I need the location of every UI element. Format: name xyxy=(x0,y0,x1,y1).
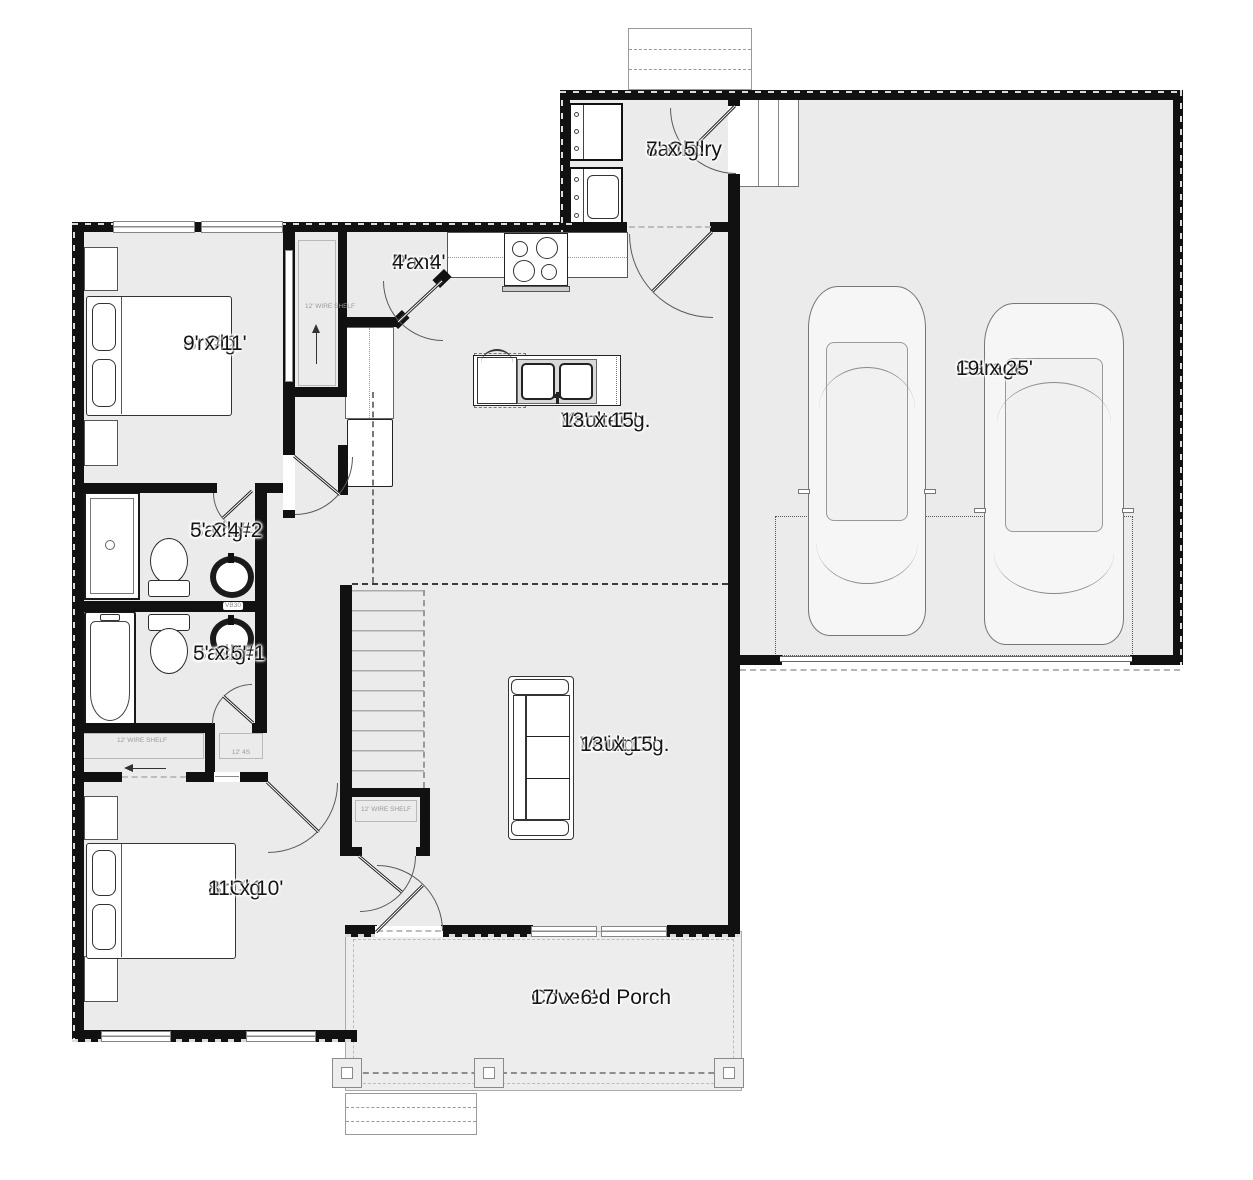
stairs-edge-dashed xyxy=(423,590,425,788)
br1-window xyxy=(246,1031,316,1042)
sink-basin xyxy=(521,363,555,400)
porch-post xyxy=(714,1058,744,1088)
br1-window xyxy=(101,1031,171,1042)
nightstand xyxy=(84,796,118,840)
porch-post-line xyxy=(353,1072,734,1074)
garage-door-overhang xyxy=(740,669,1180,671)
toilet xyxy=(150,538,188,584)
floor-plan: Laundry8' Clg.7' x 5' Pant.4' x 4' Br. #… xyxy=(0,0,1253,1180)
vault-line xyxy=(352,583,738,585)
wall-hatch xyxy=(73,232,76,1040)
hall-closet-shelf-label: 12' WIRE SHELF xyxy=(361,806,411,814)
wall-hall-west xyxy=(283,397,295,455)
porch-post xyxy=(474,1058,504,1088)
island-appliance xyxy=(477,357,517,404)
porch-post xyxy=(332,1058,362,1088)
nightstand xyxy=(84,420,118,466)
closet-arrow-head xyxy=(124,764,133,772)
vanity-label: VB30 xyxy=(223,602,243,610)
toilet xyxy=(150,628,188,674)
wall-laundry-bottom-nub xyxy=(710,222,730,232)
nightstand xyxy=(84,956,118,1002)
small-closet-label: 12' 4S xyxy=(232,749,250,757)
small-closet-opening xyxy=(214,772,240,782)
wall-br1-closet-bottom xyxy=(240,772,268,782)
br1-closet-opening xyxy=(122,776,186,778)
living-window xyxy=(601,926,667,937)
wall-hatch xyxy=(1180,90,1183,665)
bath2-sink xyxy=(210,556,254,598)
bathtub xyxy=(84,611,136,727)
br2-closet-shelf xyxy=(298,240,336,386)
washer xyxy=(569,167,623,227)
wall-hall-closet-east xyxy=(420,788,430,856)
nightstand xyxy=(84,247,118,291)
wall-garage-bottom xyxy=(1130,655,1173,665)
range-stove xyxy=(504,233,568,286)
br2-closet-shelf-label: 12' WIRE SHELF xyxy=(305,303,355,311)
laundry-door-threshold xyxy=(629,226,711,228)
range-handle xyxy=(502,286,570,292)
closet-arrow-line xyxy=(132,768,166,769)
wall-hatch xyxy=(561,100,564,232)
wall-br2-closet-bottom xyxy=(283,387,347,397)
wall-br1-closet-bottom xyxy=(186,772,214,782)
island-dotted-edge xyxy=(616,357,617,404)
wall-br2-closet-east xyxy=(338,232,347,397)
door-size-label: 30 xyxy=(233,645,240,653)
wall-hatch xyxy=(560,91,1183,94)
closet-arrow-head xyxy=(312,324,320,333)
sofa xyxy=(508,676,574,840)
shower xyxy=(84,492,140,600)
br2-window xyxy=(113,221,195,233)
dryer xyxy=(569,103,623,161)
sink-basin xyxy=(559,363,593,400)
staircase xyxy=(352,590,424,772)
br2-window xyxy=(201,221,283,233)
sink-faucet-stem xyxy=(556,392,559,404)
garage-entry-steps-exterior xyxy=(628,28,752,90)
porch-steps xyxy=(345,1093,477,1135)
living-window xyxy=(531,926,597,937)
br2-closet-slider xyxy=(285,250,293,382)
wall-hall-closet-top xyxy=(352,788,428,797)
garage-interior-steps xyxy=(737,97,799,187)
br1-closet-shelf-label: 12' WIRE SHELF xyxy=(117,737,167,745)
toilet-tank xyxy=(148,580,190,597)
wall-hall-closet-bottom xyxy=(416,847,430,856)
pantry-cabinet xyxy=(345,327,394,419)
small-closet-track xyxy=(215,776,239,777)
wall-garage-bottom xyxy=(740,655,782,665)
refrigerator xyxy=(347,419,393,487)
garage-door xyxy=(780,656,1132,662)
wall-stairs-west xyxy=(340,585,352,855)
porch-inner-dashed xyxy=(353,939,734,1084)
car xyxy=(808,286,926,636)
closet-arrow-line xyxy=(316,332,317,364)
wall-bath1-bottom-nub xyxy=(252,723,267,733)
wall-br1-closet-bottom xyxy=(72,772,122,782)
vault-line xyxy=(372,392,374,583)
wall-bath2-top xyxy=(72,483,217,493)
wall-bath1-bottom xyxy=(72,723,215,733)
br2-door-opening xyxy=(283,455,295,510)
